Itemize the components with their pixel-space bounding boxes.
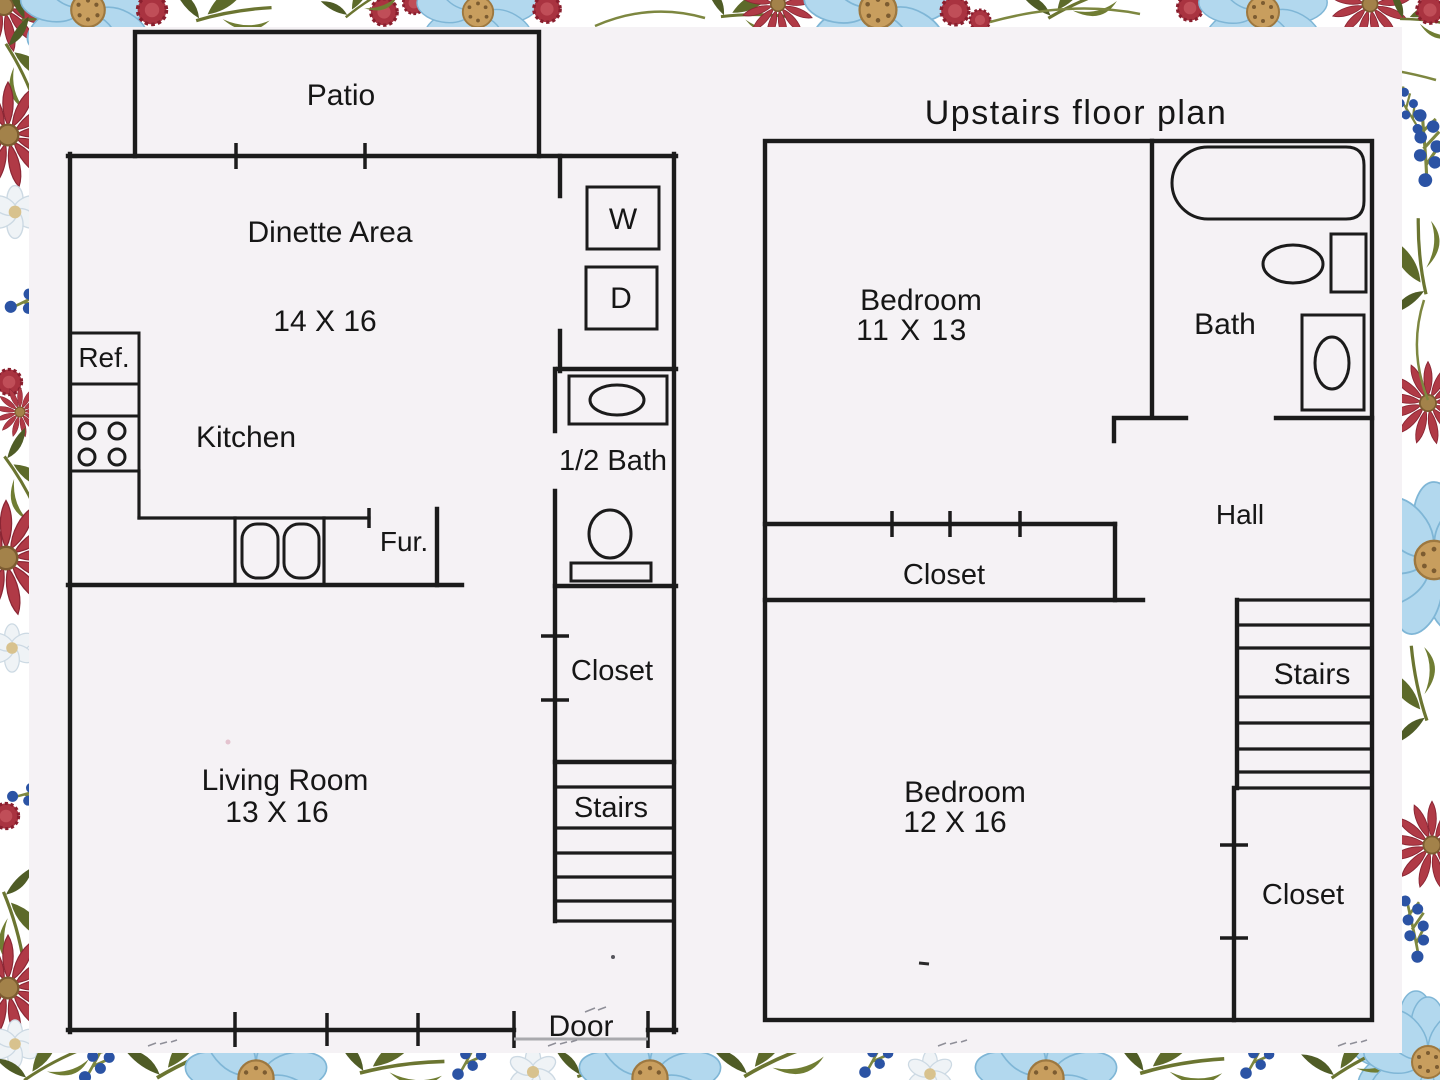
svg-text:Stairs: Stairs: [1274, 658, 1351, 691]
svg-text:Stairs: Stairs: [574, 792, 648, 824]
svg-text:Ref.: Ref.: [78, 342, 129, 373]
svg-text:Closet: Closet: [571, 655, 653, 687]
svg-text:Closet: Closet: [1262, 879, 1344, 911]
svg-text:Bath: Bath: [1194, 308, 1256, 341]
svg-text:1/2 Bath: 1/2 Bath: [559, 445, 667, 477]
svg-text:13 X 16: 13 X 16: [225, 796, 328, 829]
svg-text:Dinette Area: Dinette Area: [247, 216, 412, 249]
svg-text:Bedroom: Bedroom: [860, 284, 982, 317]
svg-text:14 X 16: 14 X 16: [273, 305, 376, 338]
svg-text:Bedroom: Bedroom: [904, 776, 1026, 809]
svg-text:Hall: Hall: [1216, 499, 1264, 530]
svg-text:W: W: [609, 203, 638, 236]
svg-text:11 X 13: 11 X 13: [856, 314, 968, 347]
svg-text:Upstairs floor plan: Upstairs floor plan: [925, 94, 1228, 132]
svg-text:Patio: Patio: [307, 79, 375, 112]
svg-text:Closet: Closet: [903, 559, 985, 591]
svg-text:12 X 16: 12 X 16: [903, 806, 1006, 839]
svg-text:D: D: [610, 282, 632, 315]
svg-text:Kitchen: Kitchen: [196, 421, 296, 454]
svg-text:Door: Door: [548, 1010, 613, 1043]
svg-text:Fur.: Fur.: [380, 526, 428, 557]
svg-text:Living Room: Living Room: [202, 764, 369, 797]
